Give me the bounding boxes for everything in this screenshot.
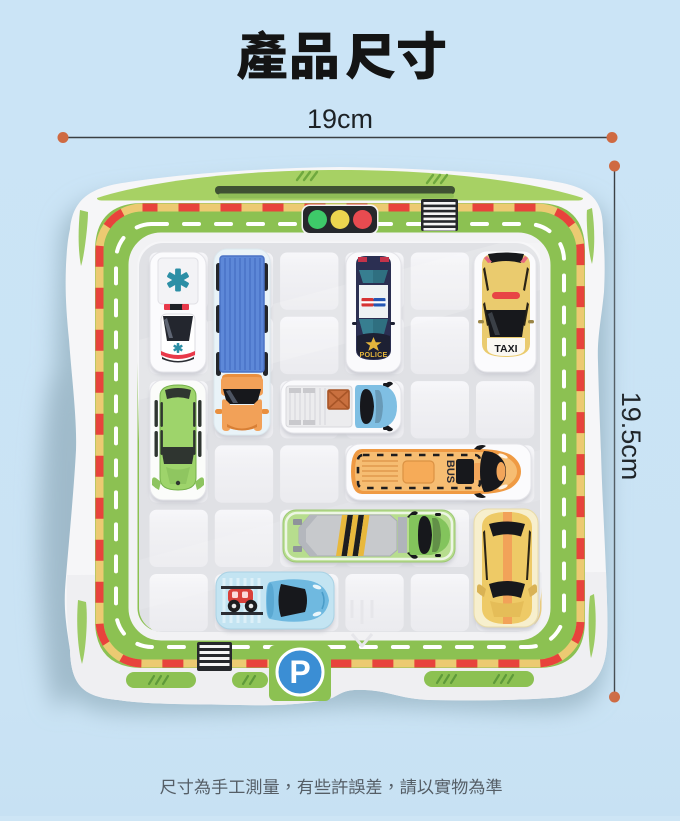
svg-text:BUS: BUS [444, 460, 456, 483]
svg-text:POLICE: POLICE [360, 350, 388, 359]
svg-text:19cm: 19cm [307, 104, 373, 134]
svg-text:P: P [289, 654, 310, 690]
svg-text:TAXI: TAXI [494, 343, 517, 355]
svg-text:19.5cm: 19.5cm [616, 392, 646, 481]
